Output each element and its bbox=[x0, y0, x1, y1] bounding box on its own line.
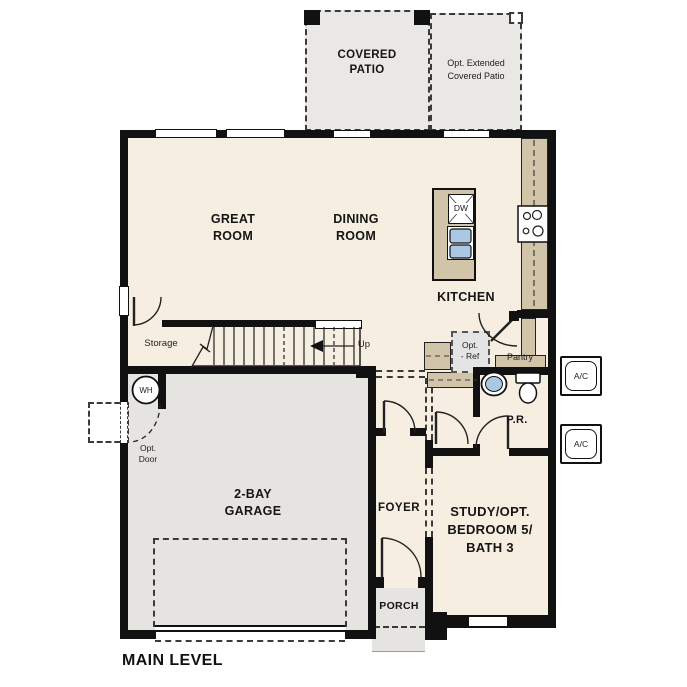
ac-label: A/C bbox=[574, 371, 588, 382]
wall bbox=[372, 577, 384, 588]
wall bbox=[548, 130, 556, 628]
wall bbox=[473, 444, 480, 456]
powder-room-label: P.R. bbox=[506, 413, 527, 427]
label-line: GREAT bbox=[211, 211, 255, 228]
wall bbox=[430, 448, 476, 456]
wall bbox=[368, 428, 386, 436]
kitchen-label: KITCHEN bbox=[437, 289, 495, 306]
wall bbox=[120, 316, 128, 639]
kitchen-cabinet bbox=[424, 342, 451, 370]
extended-patio-label: Opt. Extended Covered Patio bbox=[447, 57, 505, 83]
label-line: ROOM bbox=[333, 228, 379, 245]
label-line: BEDROOM 5/ bbox=[447, 521, 532, 539]
ac-label: A/C bbox=[574, 439, 588, 450]
label-line: DINING bbox=[333, 211, 379, 228]
wall bbox=[425, 440, 433, 468]
foyer-study-opening bbox=[425, 468, 433, 537]
garage-door bbox=[155, 625, 345, 632]
opt-door-wall-opening bbox=[120, 402, 128, 443]
wall bbox=[356, 370, 376, 378]
garage-label: 2-BAY GARAGE bbox=[225, 486, 282, 520]
wall bbox=[509, 448, 556, 456]
opt-door-label: Opt. Door bbox=[139, 443, 157, 464]
wall bbox=[418, 577, 430, 588]
porch-dashed-line bbox=[374, 626, 425, 628]
label-line: Opt. bbox=[461, 340, 479, 351]
wall bbox=[517, 310, 556, 318]
pantry-label: Pantry bbox=[507, 352, 533, 363]
window bbox=[226, 129, 285, 138]
study-label: STUDY/OPT. BEDROOM 5/ BATH 3 bbox=[447, 503, 532, 557]
label-line: COVERED bbox=[338, 48, 397, 63]
wall bbox=[425, 537, 433, 615]
water-heater-label: WH bbox=[139, 386, 152, 397]
window bbox=[155, 129, 217, 138]
dishwasher-label: DW bbox=[453, 203, 469, 214]
window bbox=[333, 130, 371, 138]
island-sink-unit bbox=[447, 226, 474, 260]
kitchen-counter bbox=[521, 138, 548, 310]
great-room-label: GREAT ROOM bbox=[211, 211, 255, 245]
window bbox=[443, 130, 490, 138]
hall-cabinet bbox=[427, 372, 479, 388]
label-line: ROOM bbox=[211, 228, 255, 245]
porch-label: PORCH bbox=[379, 599, 418, 613]
wall bbox=[473, 375, 480, 417]
cased-opening bbox=[376, 370, 425, 378]
stair-railing bbox=[315, 320, 362, 329]
label-line: BATH 3 bbox=[447, 539, 532, 557]
label-line: - Ref bbox=[461, 351, 479, 362]
storage-label: Storage bbox=[144, 338, 177, 350]
opt-ref-label: Opt. - Ref bbox=[461, 340, 479, 361]
foyer-label: FOYER bbox=[378, 501, 420, 515]
window bbox=[468, 616, 508, 627]
label-line: Covered Patio bbox=[447, 70, 505, 83]
label-line: PATIO bbox=[338, 63, 397, 78]
label-line: STUDY/OPT. bbox=[447, 503, 532, 521]
label-line: Opt. Extended bbox=[447, 57, 505, 70]
patio-post bbox=[414, 10, 430, 25]
garage-door-dashed-area bbox=[153, 538, 347, 627]
wall bbox=[128, 630, 156, 639]
floor-plan: COVERED PATIO Opt. Extended Covered Pati… bbox=[0, 0, 687, 687]
label-line: Door bbox=[139, 454, 157, 465]
wall bbox=[410, 428, 426, 436]
wall bbox=[425, 612, 447, 640]
window bbox=[119, 286, 129, 316]
wall bbox=[473, 367, 556, 375]
patio-post bbox=[304, 10, 320, 25]
porch-floor bbox=[372, 588, 425, 652]
wall bbox=[158, 373, 166, 409]
wall bbox=[120, 130, 128, 286]
covered-patio-label: COVERED PATIO bbox=[338, 48, 397, 78]
wall bbox=[345, 630, 376, 639]
up-label: Up bbox=[358, 339, 370, 351]
label-line: Opt. bbox=[139, 443, 157, 454]
wall bbox=[368, 366, 376, 638]
dining-room-label: DINING ROOM bbox=[333, 211, 379, 245]
plan-title: MAIN LEVEL bbox=[122, 652, 223, 670]
label-line: 2-BAY bbox=[225, 486, 282, 503]
pantry-shelf bbox=[521, 318, 536, 356]
driveway-dashed-line bbox=[155, 640, 345, 642]
label-line: GARAGE bbox=[225, 503, 282, 520]
wall bbox=[162, 320, 315, 327]
patio-post-optional bbox=[509, 12, 523, 24]
